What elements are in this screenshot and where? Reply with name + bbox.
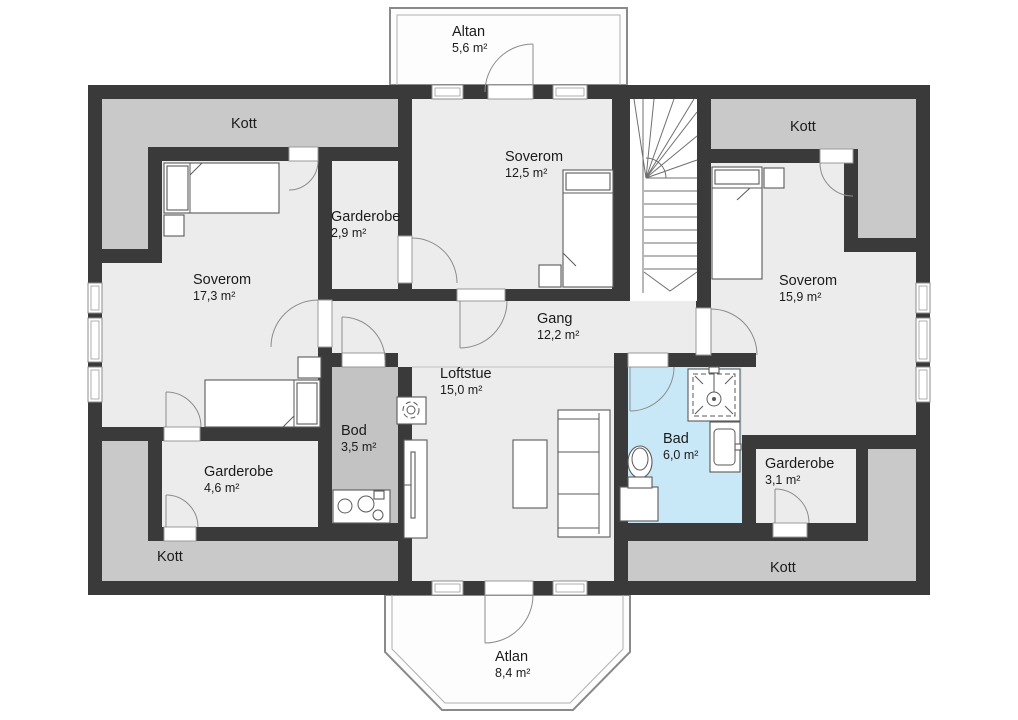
label-loftstue: Loftstue15,0 m² (440, 366, 492, 398)
window-right-3 (916, 367, 930, 402)
side-table-plant (397, 397, 426, 424)
coffee-table (513, 440, 547, 508)
nightstand (164, 215, 184, 236)
laundry-unit (333, 490, 390, 523)
label-gang: Gang12,2 m² (537, 311, 579, 343)
sink (710, 422, 741, 472)
window-top-1 (432, 85, 463, 99)
label-kott-top-right: Kott (790, 119, 816, 136)
window-right-2 (916, 318, 930, 362)
floor-plan-drawing (0, 0, 1018, 720)
label-kott-bottom-left: Kott (157, 549, 183, 566)
label-kott-bottom-right: Kott (770, 560, 796, 577)
label-garderobe-46: Garderobe4,6 m² (204, 464, 273, 496)
nightstand (539, 265, 561, 287)
window-top-2 (553, 85, 587, 99)
nightstand (764, 168, 784, 188)
label-garderobe-31: Garderobe3,1 m² (765, 456, 834, 488)
floor-plan: Altan5,6 m² Kott Soverom12,5 m² Kott Gar… (0, 0, 1018, 720)
label-atlan: Atlan8,4 m² (495, 649, 530, 681)
label-soverom-15: Soverom15,9 m² (779, 273, 837, 305)
label-bad: Bad6,0 m² (663, 431, 698, 463)
label-soverom-17: Soverom17,3 m² (193, 272, 251, 304)
nightstand (298, 357, 321, 378)
label-garderobe-29: Garderobe2,9 m² (331, 209, 400, 241)
window-right-1 (916, 283, 930, 313)
label-kott-top-left: Kott (231, 116, 257, 133)
balcony-top (390, 8, 627, 85)
label-altan: Altan5,6 m² (452, 24, 487, 56)
window-left-3 (88, 367, 102, 402)
label-soverom-12: Soverom12,5 m² (505, 149, 563, 181)
window-bottom-2 (553, 581, 587, 595)
label-bod: Bod3,5 m² (341, 423, 376, 455)
tv-bench (404, 440, 427, 538)
window-left-2 (88, 318, 102, 362)
window-left-1 (88, 283, 102, 313)
window-bottom-1 (432, 581, 463, 595)
shower (688, 367, 740, 421)
sofa (558, 410, 610, 537)
